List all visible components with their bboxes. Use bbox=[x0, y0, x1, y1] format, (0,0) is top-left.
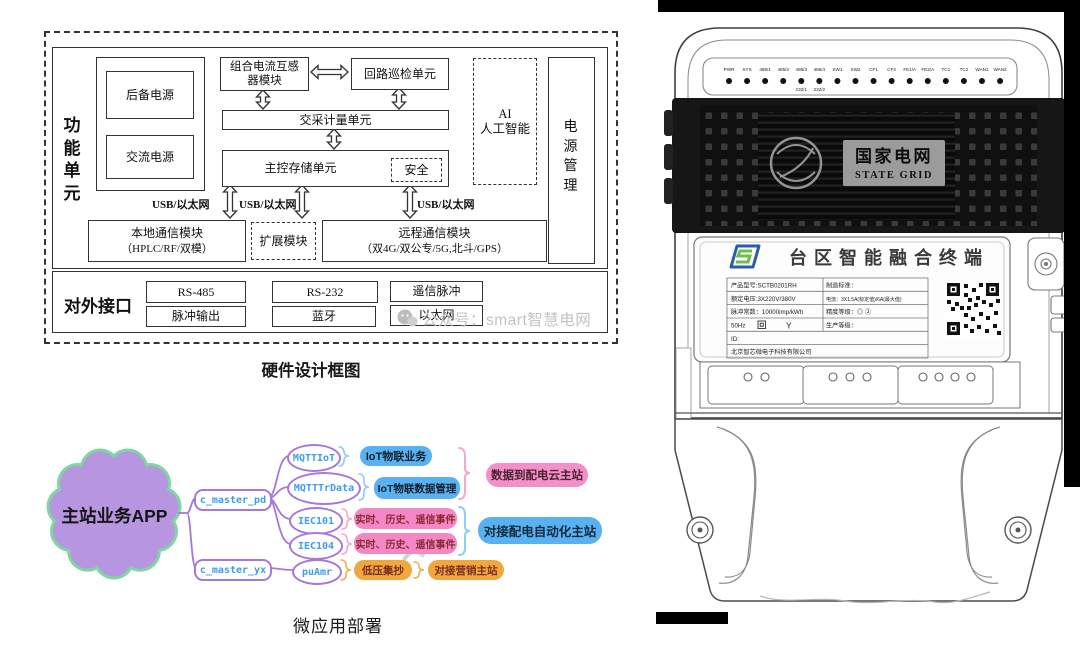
hw-if-rs485-box: RS-485 bbox=[146, 281, 246, 303]
spec-accuracy-class: 精度等级：◎ ② bbox=[826, 308, 871, 316]
hw-ai-line1: AI bbox=[498, 107, 511, 122]
leaf-iot-business-label: IoT物联业务 bbox=[366, 448, 427, 464]
leaf-marketing-master: 对接营销主站 bbox=[428, 560, 504, 580]
hw-main-control-label: 主控存储单元 bbox=[264, 161, 336, 176]
hw-if-yx-pulse: 遥信脉冲 bbox=[412, 284, 460, 299]
mindmap-caption: 微应用部署 bbox=[278, 612, 398, 637]
leaf-iot-data-mgmt-label: IoT物联数据管理 bbox=[378, 481, 457, 496]
hw-remote-comm-line1: 远程通信模块 bbox=[398, 225, 470, 241]
hw-power-mgmt-label: 电源管理 bbox=[562, 118, 579, 196]
led-label: 485/4 bbox=[814, 67, 826, 72]
led-label: WAN1 bbox=[975, 67, 989, 72]
led-label: 485/1 bbox=[759, 67, 771, 72]
leaf-marketing-master-label: 对接营销主站 bbox=[435, 563, 498, 578]
hw-backup-power-label: 后备电源 bbox=[126, 88, 174, 103]
mindmap-node-mqttiot: MQTTIoT bbox=[287, 444, 341, 472]
spec-voltage: 额定电压:3X220V/380V bbox=[731, 295, 797, 303]
hardware-design-figure: 功能单元 后备电源 交流电源 组合电流互感 器模块 回路巡检单元 交采计量单元 … bbox=[0, 0, 650, 400]
group-cloud-master-label: 数据到配电云主站 bbox=[491, 467, 583, 483]
hw-backup-power-box: 后备电源 bbox=[106, 71, 194, 119]
mindmap-branch-pd: c_master_pd bbox=[194, 489, 272, 511]
leaf-iot-data-mgmt: IoT物联数据管理 bbox=[374, 477, 460, 499]
branch-yx-label: c_master_yx bbox=[200, 565, 266, 576]
photo-black-bar-bottom-left bbox=[656, 612, 728, 624]
hw-remote-comm-line2: （双4G/双公专/5G,北斗/GPS） bbox=[361, 241, 508, 257]
nameplate-title: 台区智能融合终端 bbox=[789, 247, 989, 268]
hw-if-yx-pulse-box: 遥信脉冲 bbox=[390, 281, 483, 302]
photo-black-bar-right bbox=[1064, 0, 1080, 487]
node-mqttiot-label: MQTTIoT bbox=[293, 453, 335, 464]
led-sub-label: 232/1 bbox=[796, 87, 808, 92]
hw-if-pulseout: 脉冲输出 bbox=[172, 309, 220, 324]
smartchip-logo-icon bbox=[731, 246, 759, 267]
hw-loop-inspection-box: 回路巡检单元 bbox=[351, 58, 449, 90]
spec-pulse-constant: 脉冲常数：10000imp/kWh bbox=[731, 308, 804, 316]
micro-app-figure: 主站业务APP c_master_pd c_master_yx MQTTIoT … bbox=[0, 400, 650, 649]
device-lower-body bbox=[675, 419, 1062, 601]
led-label: FE1/A bbox=[903, 67, 917, 72]
hw-ai-line2: 人工智能 bbox=[480, 122, 530, 137]
mindmap-node-mqtttrdata: MQTTTrData bbox=[287, 472, 361, 505]
hw-if-pulseout-box: 脉冲输出 bbox=[146, 306, 246, 327]
hw-if-rs485: RS-485 bbox=[178, 285, 215, 300]
node-puamr-label: puAmr bbox=[302, 567, 332, 578]
led-label: SW1 bbox=[832, 67, 842, 72]
leaf-events-101: 实时、历史、遥信事件 bbox=[354, 508, 457, 529]
mindmap-branch-yx: c_master_yx bbox=[194, 559, 272, 581]
hw-ct-module-line1: 组合电流互感 bbox=[230, 60, 299, 74]
hw-usb-label-2: USB/以太网 bbox=[239, 196, 296, 212]
led-label: PWR bbox=[724, 67, 735, 72]
led-dot bbox=[889, 78, 895, 84]
hw-expansion-label: 扩展模块 bbox=[259, 234, 307, 249]
spec-model: 产品型号:SCTB0201RH bbox=[731, 282, 797, 290]
led-dot bbox=[925, 78, 931, 84]
led-dot bbox=[780, 78, 786, 84]
hw-usb-label-3: USB/以太网 bbox=[417, 196, 474, 212]
leaf-events-101-label: 实时、历史、遥信事件 bbox=[356, 511, 456, 526]
branch-pd-label: c_master_pd bbox=[200, 495, 266, 506]
spec-id: ID: bbox=[731, 336, 739, 343]
hw-if-rs232: RS-232 bbox=[307, 285, 344, 300]
qr-code bbox=[943, 279, 1003, 339]
leaf-lv-metering-label: 低压集抄 bbox=[362, 563, 404, 578]
terminal-device-illustration: PWRSYS485/1485/2485/3232/1485/4232/2SW1S… bbox=[655, 0, 1080, 649]
led-label: FE2/A bbox=[921, 67, 935, 72]
led-dot bbox=[871, 78, 877, 84]
hw-metering-box: 交采计量单元 bbox=[222, 110, 449, 130]
hw-remote-comm-box: 远程通信模块 （双4G/双公专/5G,北斗/GPS） bbox=[322, 220, 547, 262]
watermark-text: 公众号：smart智慧电网 bbox=[422, 308, 591, 330]
mindmap-node-puamr: puAmr bbox=[292, 559, 342, 585]
led-dot bbox=[744, 78, 750, 84]
mindmap-node-iec101: IEC101 bbox=[289, 507, 343, 535]
led-dot bbox=[834, 78, 840, 84]
led-dot bbox=[816, 78, 822, 84]
group-automation-master: 对接配电自动化主站 bbox=[478, 517, 602, 544]
led-label: CF1 bbox=[869, 67, 878, 72]
led-dot bbox=[997, 78, 1003, 84]
led-dot bbox=[762, 78, 768, 84]
led-label: CF2 bbox=[887, 67, 896, 72]
led-label: SW2 bbox=[851, 67, 861, 72]
led-dot bbox=[726, 78, 732, 84]
hw-ac-power-label: 交流电源 bbox=[126, 150, 174, 165]
node-iec104-label: IEC104 bbox=[298, 541, 334, 552]
hw-if-bluetooth: 蓝牙 bbox=[312, 309, 336, 324]
leaf-events-104-label: 实时、历史、遥信事件 bbox=[356, 536, 456, 551]
mindmap-node-iec104: IEC104 bbox=[289, 532, 343, 560]
watermark: 公众号：smart智慧电网 bbox=[396, 308, 591, 330]
node-iec101-label: IEC101 bbox=[298, 516, 334, 527]
led-dot bbox=[798, 78, 804, 84]
hw-caption: 硬件设计框图 bbox=[250, 357, 372, 381]
hw-ct-module-line2: 器模块 bbox=[247, 74, 282, 88]
spec-standard: 制造标准： bbox=[826, 282, 857, 290]
hw-metering-label: 交采计量单元 bbox=[299, 113, 371, 128]
led-label: WAN2 bbox=[993, 67, 1007, 72]
led-sub-label: 232/2 bbox=[814, 87, 826, 92]
hw-local-comm-box: 本地通信模块 （HPLC/RF/双模） bbox=[88, 220, 246, 262]
hw-if-bluetooth-box: 蓝牙 bbox=[272, 306, 376, 327]
hw-ai-box: AI 人工智能 bbox=[473, 58, 537, 185]
led-label: TC1 bbox=[941, 67, 950, 72]
group-automation-master-label: 对接配电自动化主站 bbox=[484, 521, 597, 540]
hw-local-comm-line1: 本地通信模块 bbox=[131, 225, 203, 241]
wye-symbol: Y bbox=[786, 321, 792, 331]
led-dot bbox=[943, 78, 949, 84]
leaf-events-104: 实时、历史、遥信事件 bbox=[354, 533, 457, 554]
group-cloud-master: 数据到配电云主站 bbox=[486, 463, 588, 487]
led-dot bbox=[961, 78, 967, 84]
leaf-lv-metering: 低压集抄 bbox=[354, 560, 412, 580]
hw-loop-inspection-label: 回路巡检单元 bbox=[364, 67, 436, 82]
hw-security-label: 安全 bbox=[404, 163, 428, 178]
led-label: 485/3 bbox=[796, 67, 808, 72]
led-label: 485/2 bbox=[777, 67, 789, 72]
leaf-iot-business: IoT物联业务 bbox=[360, 446, 432, 466]
hw-ac-power-box: 交流电源 bbox=[106, 135, 194, 179]
spec-frequency: 50Hz bbox=[731, 323, 745, 330]
photo-black-bar-top bbox=[658, 0, 1080, 12]
hw-expansion-box: 扩展模块 bbox=[251, 222, 316, 260]
brand-cn: 国家电网 bbox=[855, 146, 933, 166]
hw-ext-if-label: 对外接口 bbox=[64, 292, 132, 317]
hw-if-rs232-box: RS-232 bbox=[272, 281, 378, 303]
hw-ct-module-box: 组合电流互感 器模块 bbox=[220, 57, 309, 91]
hw-local-comm-line2: （HPLC/RF/双模） bbox=[121, 241, 213, 257]
spec-company: 北京智芯微电子科技有限公司 bbox=[731, 348, 811, 356]
led-label: SYS bbox=[742, 67, 751, 72]
led-dot bbox=[852, 78, 858, 84]
led-dot bbox=[979, 78, 985, 84]
hw-functional-unit-label: 功能单元 bbox=[62, 115, 82, 205]
led-dot bbox=[907, 78, 913, 84]
led-label: TC2 bbox=[960, 67, 969, 72]
brand-en: STATE GRID bbox=[855, 170, 933, 181]
mindmap-links bbox=[178, 456, 294, 570]
wechat-icon bbox=[396, 308, 418, 330]
figure-canvas: 功能单元 后备电源 交流电源 组合电流互感 器模块 回路巡检单元 交采计量单元 … bbox=[0, 0, 1080, 649]
hw-usb-label-1: USB/以太网 bbox=[152, 196, 209, 212]
node-mqtttrdata-label: MQTTTrData bbox=[294, 483, 354, 494]
mindmap-root-label: 主站业务APP bbox=[57, 503, 172, 528]
terminal-covers bbox=[708, 366, 993, 404]
spec-current: 电流：3X1.5A(标定值)/6A(最大值) bbox=[826, 296, 902, 303]
hw-security-box: 安全 bbox=[391, 158, 442, 182]
led-strip bbox=[703, 58, 1017, 95]
spec-production-class: 生产等级： bbox=[826, 322, 857, 330]
